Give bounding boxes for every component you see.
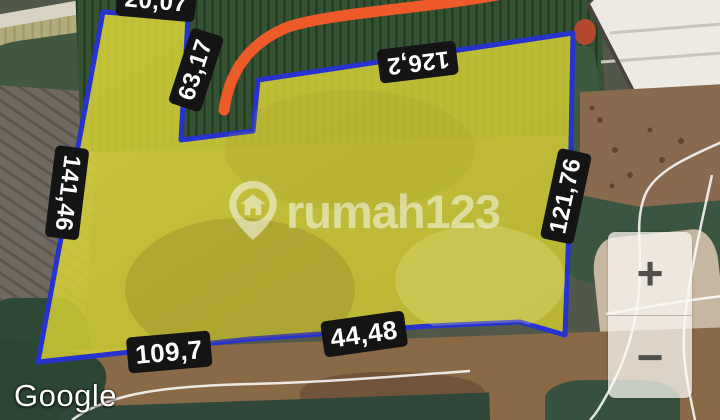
orange-ground-patch: [574, 19, 596, 45]
zoom-control: + −: [608, 232, 692, 398]
warehouse-roof: [574, 0, 720, 93]
dirt-field: [580, 84, 720, 207]
path-bottom: [72, 371, 470, 420]
map-canvas[interactable]: 20,07 63,17 126,2 141,46 121,76 109,7 44…: [0, 0, 720, 420]
zoom-in-button[interactable]: +: [608, 232, 692, 316]
google-attribution[interactable]: Google: [14, 378, 117, 414]
measurement-badge-bottom-left: 109,7: [126, 330, 212, 373]
zoom-out-button[interactable]: −: [608, 316, 692, 399]
